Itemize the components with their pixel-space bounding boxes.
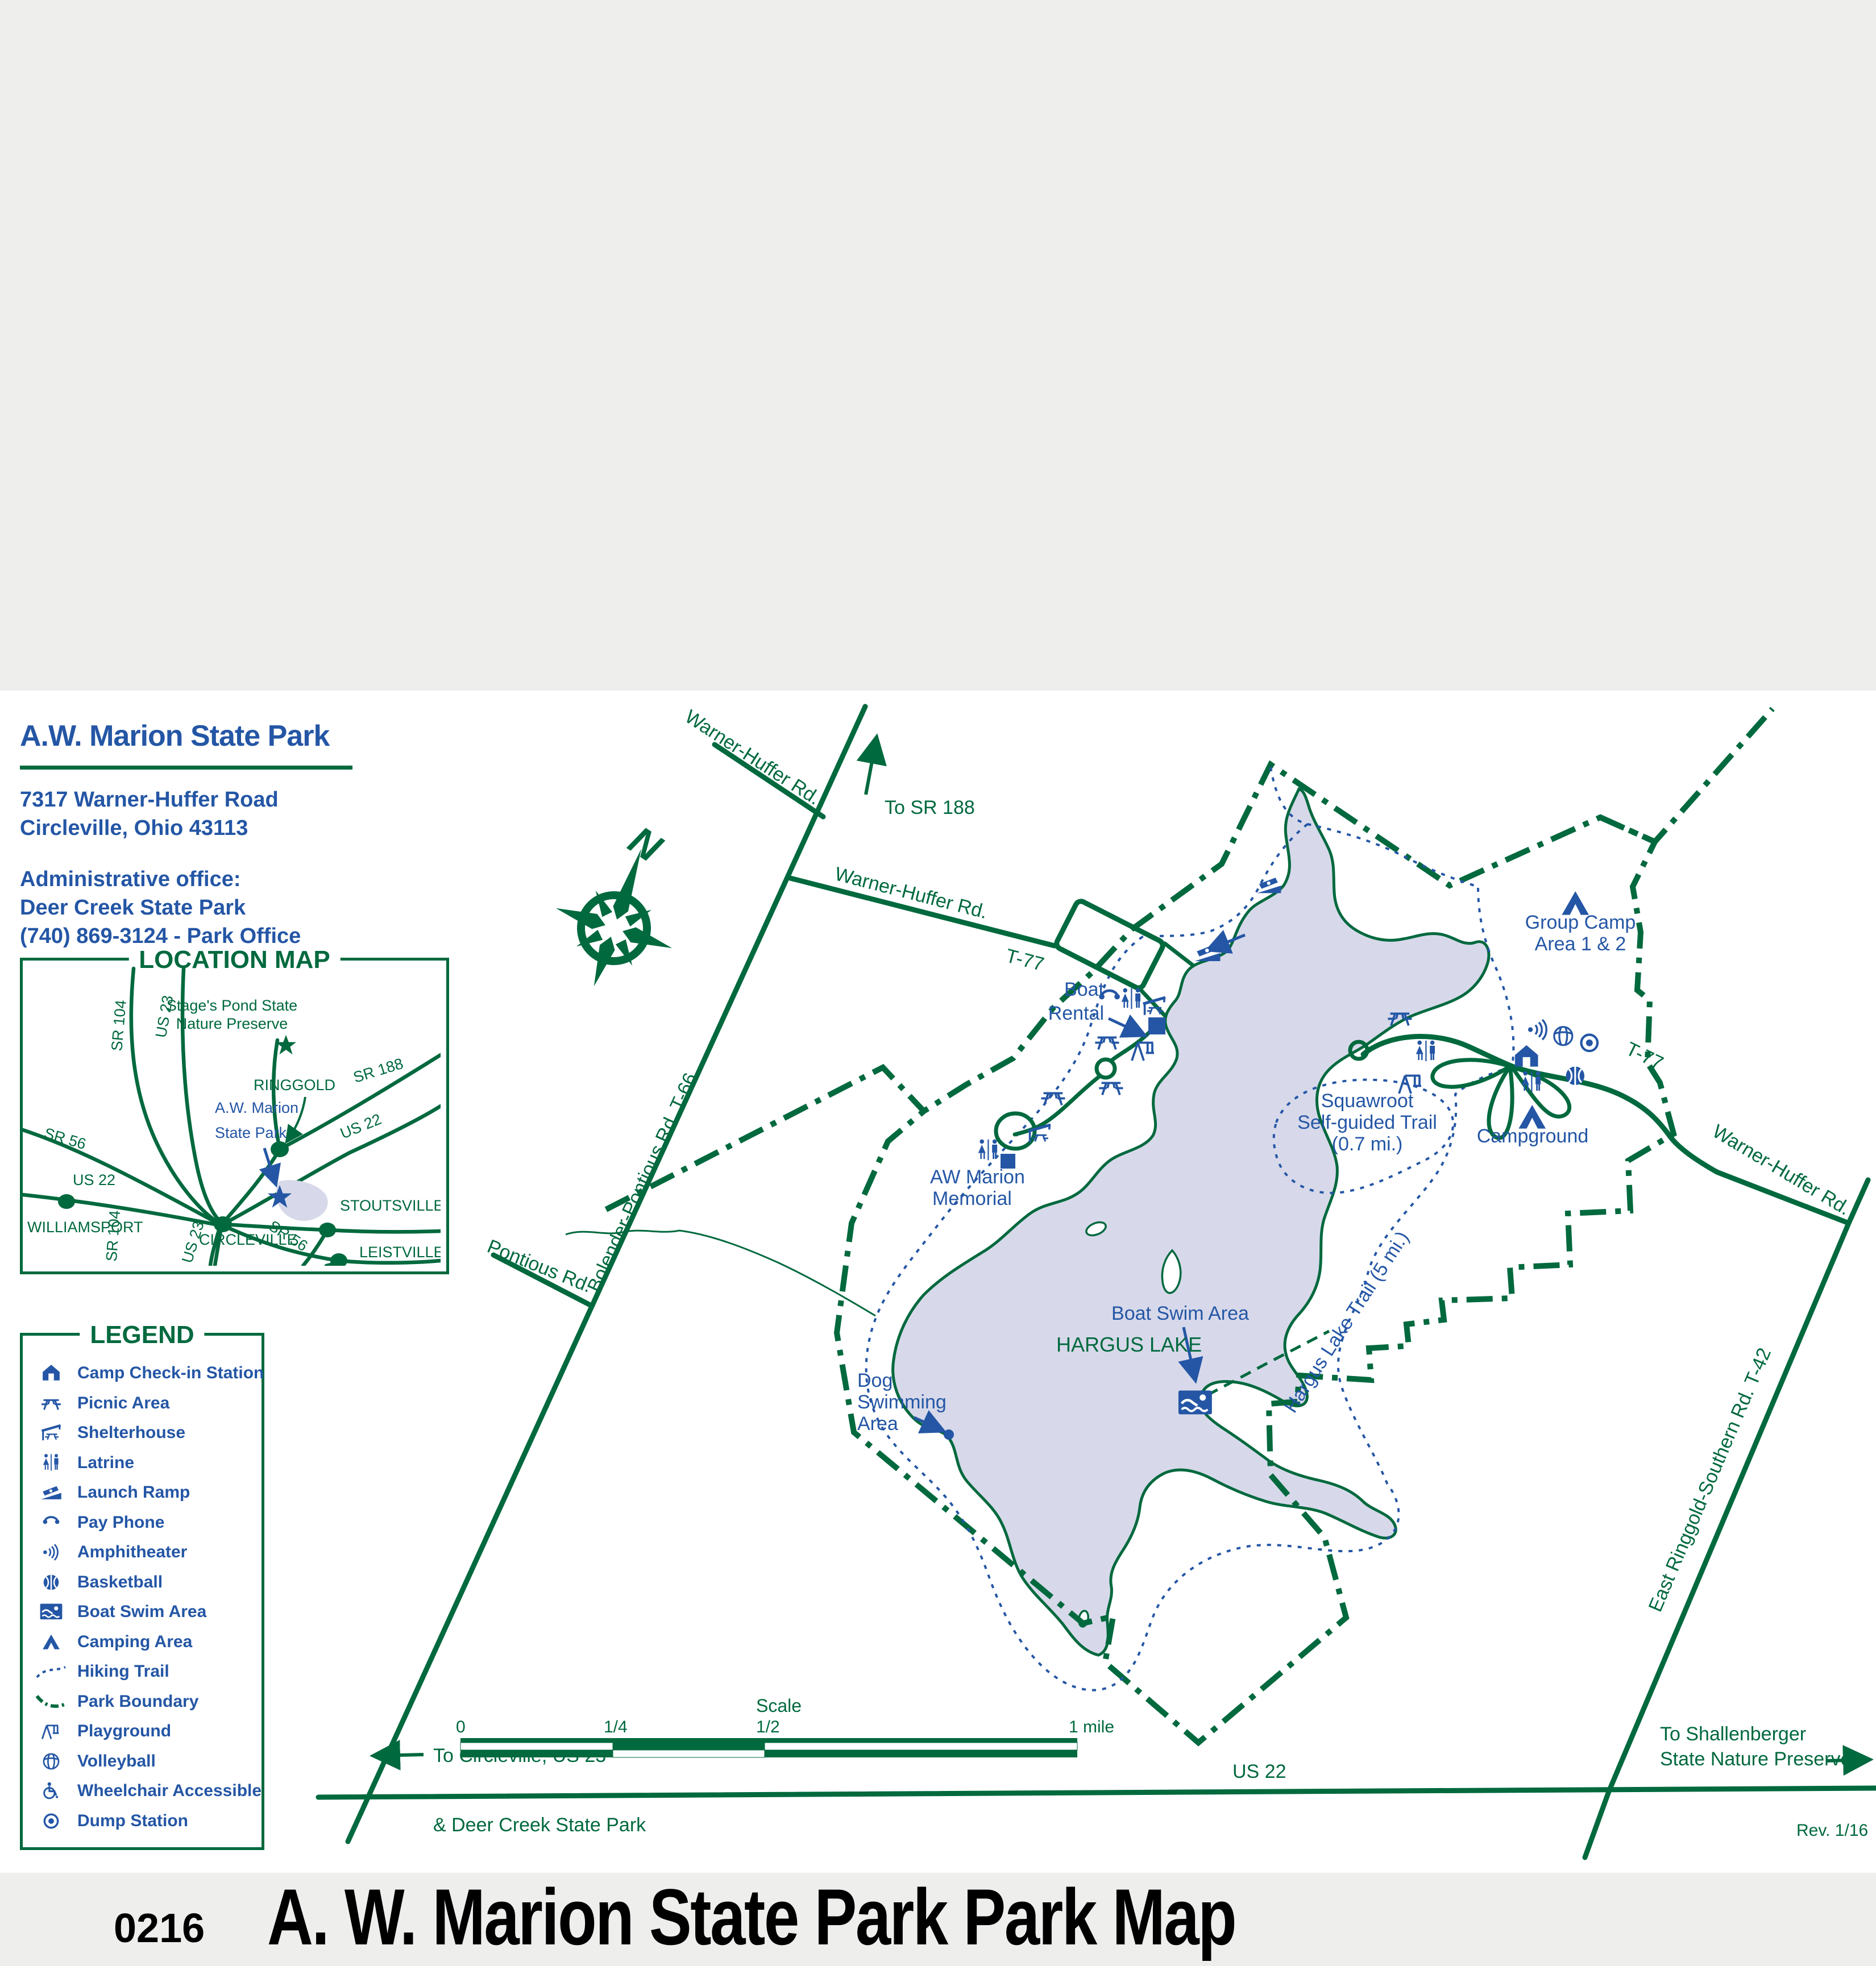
scale-ticks: 0 1/4 1/2 1 mile xyxy=(456,1718,1114,1736)
compass-north-label: N xyxy=(621,817,670,871)
boat-rental-arrow xyxy=(1109,1019,1143,1034)
scale-bar: Scale 0 1/4 1/2 1 mile xyxy=(456,1695,1114,1757)
label-deer-creek: & Deer Creek State Park xyxy=(433,1814,646,1836)
dump-station-icon xyxy=(1582,1035,1598,1051)
picnic-area-icon xyxy=(1099,1083,1123,1095)
boat-rental-loop-road xyxy=(1055,899,1164,990)
main-park-map: N Wa xyxy=(0,691,1876,1873)
to-sr188-arrow xyxy=(866,740,876,795)
to-circleville-arrow xyxy=(376,1755,424,1756)
label-revision: Rev. 1/16 xyxy=(1796,1821,1868,1840)
amphitheater-icon xyxy=(1528,1020,1546,1040)
shore-drive-2 xyxy=(1015,1076,1100,1134)
label-dog-3: Area xyxy=(857,1413,898,1435)
label-aw-memorial-1: AW Marion xyxy=(930,1166,1025,1188)
camp-checkin-icon xyxy=(1515,1045,1538,1067)
scale-tick-half: 1/2 xyxy=(756,1718,780,1736)
label-boat-rental-2: Rental xyxy=(1048,1003,1104,1024)
park-boundary-northeast xyxy=(1600,709,1773,842)
map-code: 0216 xyxy=(114,1905,205,1952)
scale-bar-graphic xyxy=(460,1738,1077,1757)
label-dog-2: Swimming xyxy=(857,1391,947,1413)
latrine-icon xyxy=(1522,1071,1541,1092)
label-t77-west: T-77 xyxy=(1003,945,1046,975)
label-shallenberger-1: To Shallenberger xyxy=(1660,1723,1806,1745)
scale-title: Scale xyxy=(756,1695,802,1716)
label-boat-swim: Boat Swim Area xyxy=(1111,1303,1249,1324)
scale-tick-mile: 1 mile xyxy=(1069,1718,1114,1736)
picnic-area-icon xyxy=(1095,1037,1119,1049)
latrine-icon xyxy=(1416,1041,1435,1062)
top-margin-band xyxy=(0,0,1876,691)
latrine-icon xyxy=(1122,988,1140,1009)
page-title: A. W. Marion State Park Park Map xyxy=(267,1871,1632,1963)
launch-ramp-icon xyxy=(1257,878,1281,893)
label-east-ringgold: East Ringgold-Southern Rd. T-42 xyxy=(1645,1345,1775,1615)
label-group-camp-1: Group Camp xyxy=(1525,912,1636,933)
label-us22: US 22 xyxy=(1232,1761,1286,1782)
label-warner-huffer-top: Warner-Huffer Rd. xyxy=(681,706,824,809)
label-to-sr188: To SR 188 xyxy=(885,797,975,818)
label-squawroot-3: (0.7 mi.) xyxy=(1332,1133,1403,1155)
scale-tick-0: 0 xyxy=(456,1718,466,1736)
label-shallenberger-2: State Nature Preserve xyxy=(1660,1748,1851,1770)
label-hargus-lake: HARGUS LAKE xyxy=(1056,1333,1202,1356)
label-squawroot-1: Squawroot xyxy=(1321,1090,1414,1112)
label-pontious: Pontious Rd. xyxy=(484,1236,595,1297)
label-boat-rental-1: Boat xyxy=(1064,979,1104,1000)
latrine-icon xyxy=(978,1140,997,1161)
boat-swim-icon xyxy=(1178,1391,1212,1415)
road-us22 xyxy=(318,1788,1876,1797)
dog-swim-point xyxy=(944,1429,954,1440)
label-t77-east: T-77 xyxy=(1622,1038,1667,1074)
volleyball-icon xyxy=(1554,1027,1572,1045)
label-group-camp-2: Area 1 & 2 xyxy=(1535,933,1626,955)
compass-rose xyxy=(536,829,700,1006)
label-aw-memorial-2: Memorial xyxy=(932,1188,1012,1209)
launch-drive xyxy=(1165,943,1193,965)
label-warner-huffer-east: Warner-Huffer Rd. xyxy=(1709,1120,1854,1220)
scale-tick-quarter: 1/4 xyxy=(604,1718,628,1736)
basketball-icon xyxy=(1566,1067,1585,1086)
boat-rental-building xyxy=(1148,1017,1165,1034)
label-campground: Campground xyxy=(1477,1125,1589,1147)
label-squawroot-2: Self-guided Trail xyxy=(1297,1112,1437,1133)
label-dog-1: Dog xyxy=(857,1370,893,1391)
label-bolender-pontious: Bolender-Pontious Rd. T-66 xyxy=(583,1070,702,1295)
